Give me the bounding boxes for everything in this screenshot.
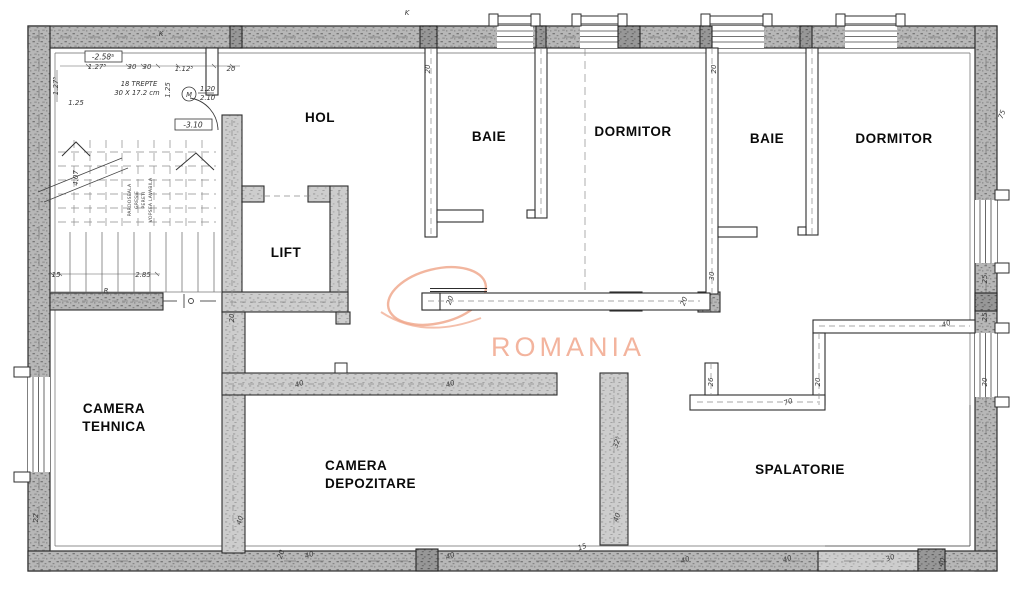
finish-note-2: GRESIE — [134, 191, 140, 209]
dim-label: 75 — [997, 108, 1008, 120]
room-label-dormitor-2: DORMITOR — [855, 131, 932, 146]
wall-lift-foot — [336, 312, 350, 324]
corridor-rail — [430, 289, 487, 292]
wall-baie2-right-foot — [798, 227, 806, 235]
room-label-camera-depozitare-1: CAMERA — [325, 458, 387, 473]
wall-baie1-stub — [437, 210, 483, 222]
dim-label: 30 — [143, 63, 152, 71]
window-right-2 — [975, 323, 1009, 407]
room-label-dormitor-1: DORMITOR — [594, 124, 671, 139]
dim-label: 20 — [814, 377, 822, 386]
stair-annotations: -2.58⁵ -3.10 18 TREPTE 30 X 17.2 cm M 1.… — [92, 53, 215, 223]
stair-note-1: 18 TREPTE — [121, 80, 158, 88]
axis-label: K — [405, 9, 411, 17]
dim-label: 25 — [981, 274, 989, 283]
wall-corridor-long — [422, 293, 710, 310]
wall-camera-tehnica-top — [50, 293, 163, 310]
dim-label: 1.25 — [68, 99, 84, 107]
room-label-spalatorie: SPALATORIE — [755, 462, 845, 477]
wall-depozitare-tab — [335, 363, 347, 373]
floorplan-drawing: ROMANIA — [0, 0, 1024, 604]
window-left — [14, 367, 50, 482]
column-bottom-1 — [416, 549, 438, 571]
wall-lift-stub-right — [308, 186, 330, 202]
floorplan-canvas: ROMANIA — [0, 0, 1024, 604]
window-top-4 — [836, 14, 905, 48]
room-label-lift: LIFT — [271, 245, 302, 260]
room-label-baie-2: BAIE — [750, 131, 784, 146]
dim-label: 20 — [227, 65, 236, 73]
axis-label: R — [104, 287, 109, 295]
pier-right-wall — [975, 293, 997, 311]
door-mark-label: M — [186, 91, 192, 99]
dim-label: 1.27⁵ — [52, 77, 60, 96]
dimension-labels: 1.27⁵ 30 30 1.12⁵ 20 1.25 1.27⁵ 1.25 4.0… — [32, 9, 1008, 568]
window-right-1 — [975, 190, 1009, 273]
dim-label: 1.12⁵ — [175, 65, 194, 73]
room-label-camera-tehnica-2: TEHNICA — [82, 419, 146, 434]
door-symbol-camera-tehnica — [163, 294, 216, 308]
finish-note-1: PARDOSEALA — [127, 183, 133, 216]
level-upper-label: -2.58⁵ — [92, 53, 114, 62]
room-label-camera-depozitare-2: DEPOZITARE — [325, 476, 416, 491]
wall-corridor-endcap — [422, 293, 440, 310]
dim-label: 20 — [228, 313, 236, 322]
door-height-label: 2.10 — [200, 94, 215, 102]
dim-label: 15 — [52, 271, 61, 279]
dim-label: 20 — [710, 64, 718, 73]
dim-label: 30 — [708, 271, 716, 280]
finish-note-4: VOPSEA LAVABILA — [148, 177, 154, 222]
dim-label: 1.27⁵ — [88, 63, 107, 71]
dim-label: 2.85 — [135, 271, 151, 279]
dim-label: 22 — [32, 513, 40, 522]
dim-label: 1.25 — [164, 82, 172, 98]
wall-spalatorie-top — [690, 395, 825, 410]
dim-label: 20 — [981, 377, 989, 386]
door-width-label: 1.20 — [200, 85, 215, 93]
wall-lift-stub-left — [242, 186, 264, 202]
dim-label: 4.07 — [72, 170, 80, 186]
stair-note-2: 30 X 17.2 cm — [114, 89, 160, 97]
wall-baie2-stub — [718, 227, 757, 237]
room-label-baie-1: BAIE — [472, 129, 506, 144]
wall-baie1-right-foot — [527, 210, 535, 218]
dim-label: 20 — [424, 64, 432, 73]
dim-label: 30 — [128, 63, 137, 71]
watermark-text: ROMANIA — [491, 332, 645, 362]
room-label-hol: HOL — [305, 110, 335, 125]
level-lower-label: -3.10 — [183, 121, 203, 130]
finish-note-3: PERETI — [141, 191, 147, 208]
dim-label: 25 — [981, 312, 989, 321]
room-label-camera-tehnica-1: CAMERA — [83, 401, 145, 416]
dim-label: 26 — [707, 377, 715, 386]
